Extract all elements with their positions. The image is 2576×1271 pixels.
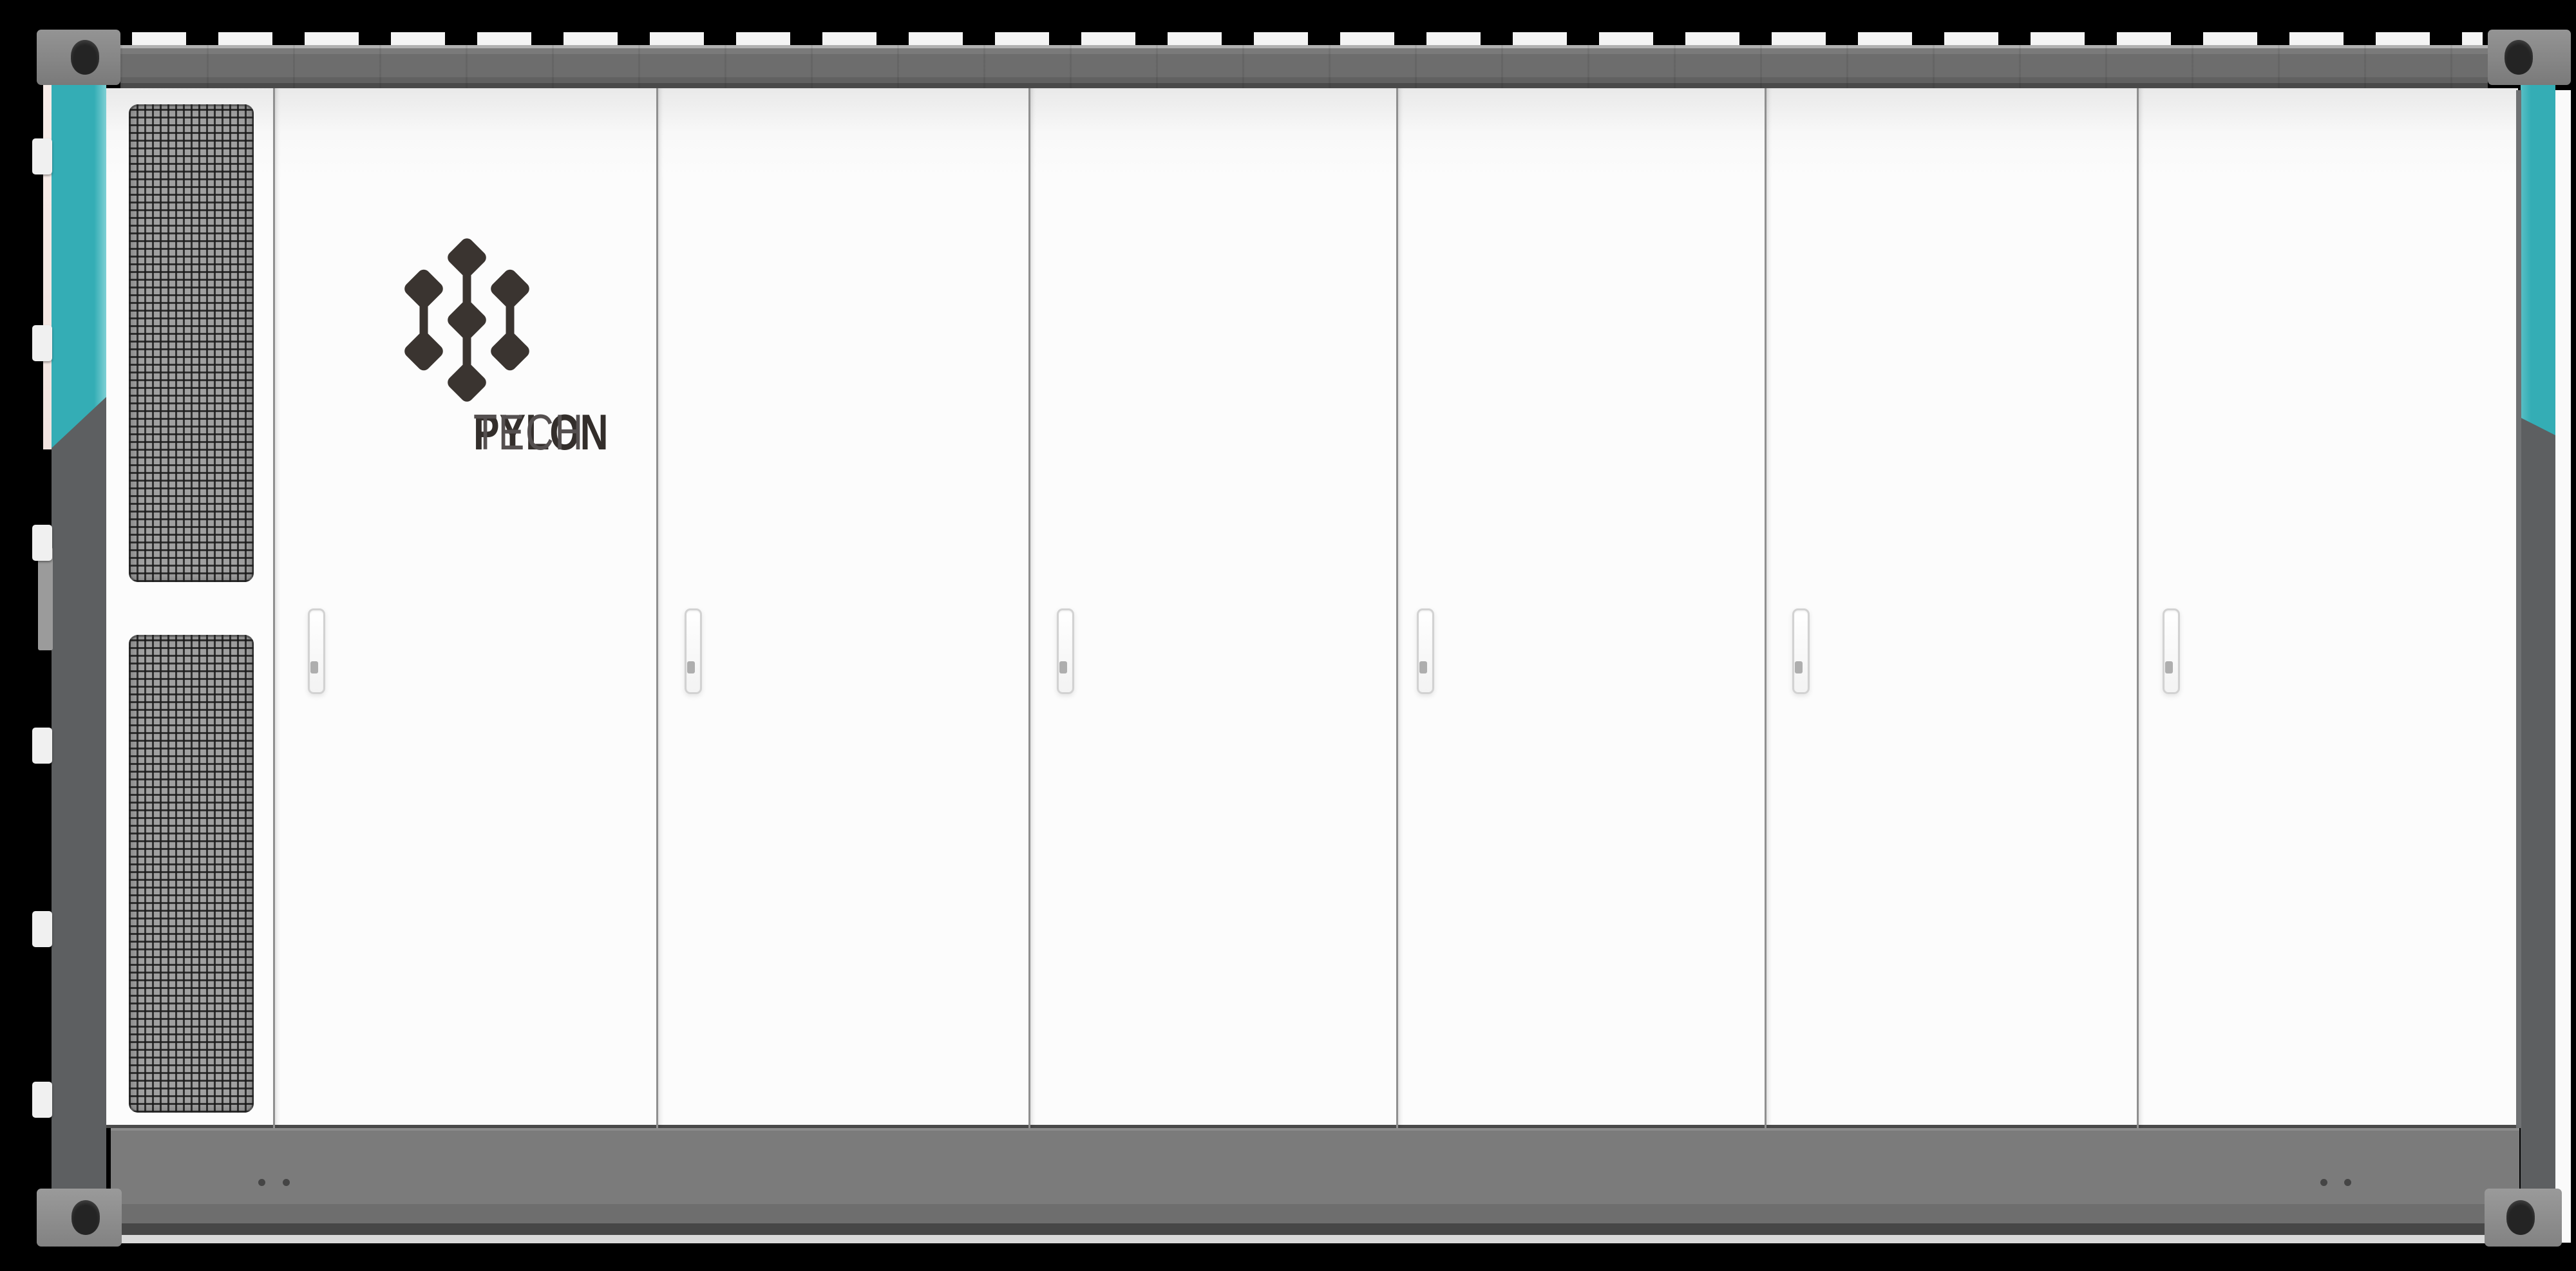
door-row	[273, 88, 2518, 1128]
bottom-rail	[111, 1128, 2519, 1235]
door-handle-3	[1057, 608, 1074, 694]
bess-container-render: PYLONTECH	[0, 0, 2576, 1271]
door-handle-4	[1417, 608, 1434, 694]
corner-casting-bottom-left	[37, 1189, 122, 1247]
cabinet-door-3	[1028, 88, 1396, 1128]
corner-hole-icon	[2505, 40, 2533, 75]
left-hinge-tab-4	[32, 728, 52, 764]
right-edge-highlight	[2555, 90, 2571, 1243]
teal-accent-right	[2521, 82, 2555, 435]
door-handle-6	[2163, 608, 2180, 694]
left-hinge-tab-2	[32, 325, 52, 361]
ventilation-grille-bottom	[129, 635, 254, 1113]
corner-casting-top-left	[37, 30, 120, 85]
corner-hole-icon	[71, 1200, 100, 1235]
left-hinge-tab-6	[32, 1082, 52, 1118]
cabinet-door-5	[1765, 88, 2137, 1128]
bottom-rail-rivet-dot	[2344, 1179, 2351, 1186]
corner-hole-icon	[71, 40, 99, 75]
teal-accent-left	[52, 82, 106, 448]
corner-hole-icon	[2506, 1200, 2535, 1235]
left-hinge-tab-1	[32, 138, 52, 174]
bottom-skid-strip	[120, 1235, 2506, 1243]
door-handle-5	[1792, 608, 1810, 694]
bottom-rail-rivet-dot	[283, 1179, 290, 1186]
pylontech-diamonds-logo-icon	[385, 225, 553, 419]
cabinet-door-2	[656, 88, 1028, 1128]
top-rail	[120, 45, 2488, 88]
corner-casting-top-right	[2488, 30, 2571, 85]
cabinet-door-4	[1396, 88, 1765, 1128]
brand-wordmark: PYLONTECH	[378, 407, 569, 458]
wordmark-tech: TECH	[473, 407, 584, 457]
door-handle-2	[685, 608, 702, 694]
right-corner-post	[2521, 82, 2555, 1191]
left-hinge-tab-5	[32, 911, 52, 947]
left-hinge-tab-3	[32, 525, 52, 561]
bottom-rail-rivet-dot	[258, 1179, 265, 1186]
bottom-rail-rivet-dot	[2320, 1179, 2327, 1186]
corner-casting-bottom-right	[2485, 1189, 2562, 1247]
left-corner-post	[52, 82, 106, 1191]
left-edge-highlight	[43, 82, 52, 449]
ventilation-grille-top	[129, 104, 254, 582]
door-handle-1	[308, 608, 325, 694]
cabinet-door-6	[2137, 88, 2518, 1128]
right-frame-line	[2516, 90, 2521, 1128]
left-hinge-plate	[38, 547, 53, 650]
